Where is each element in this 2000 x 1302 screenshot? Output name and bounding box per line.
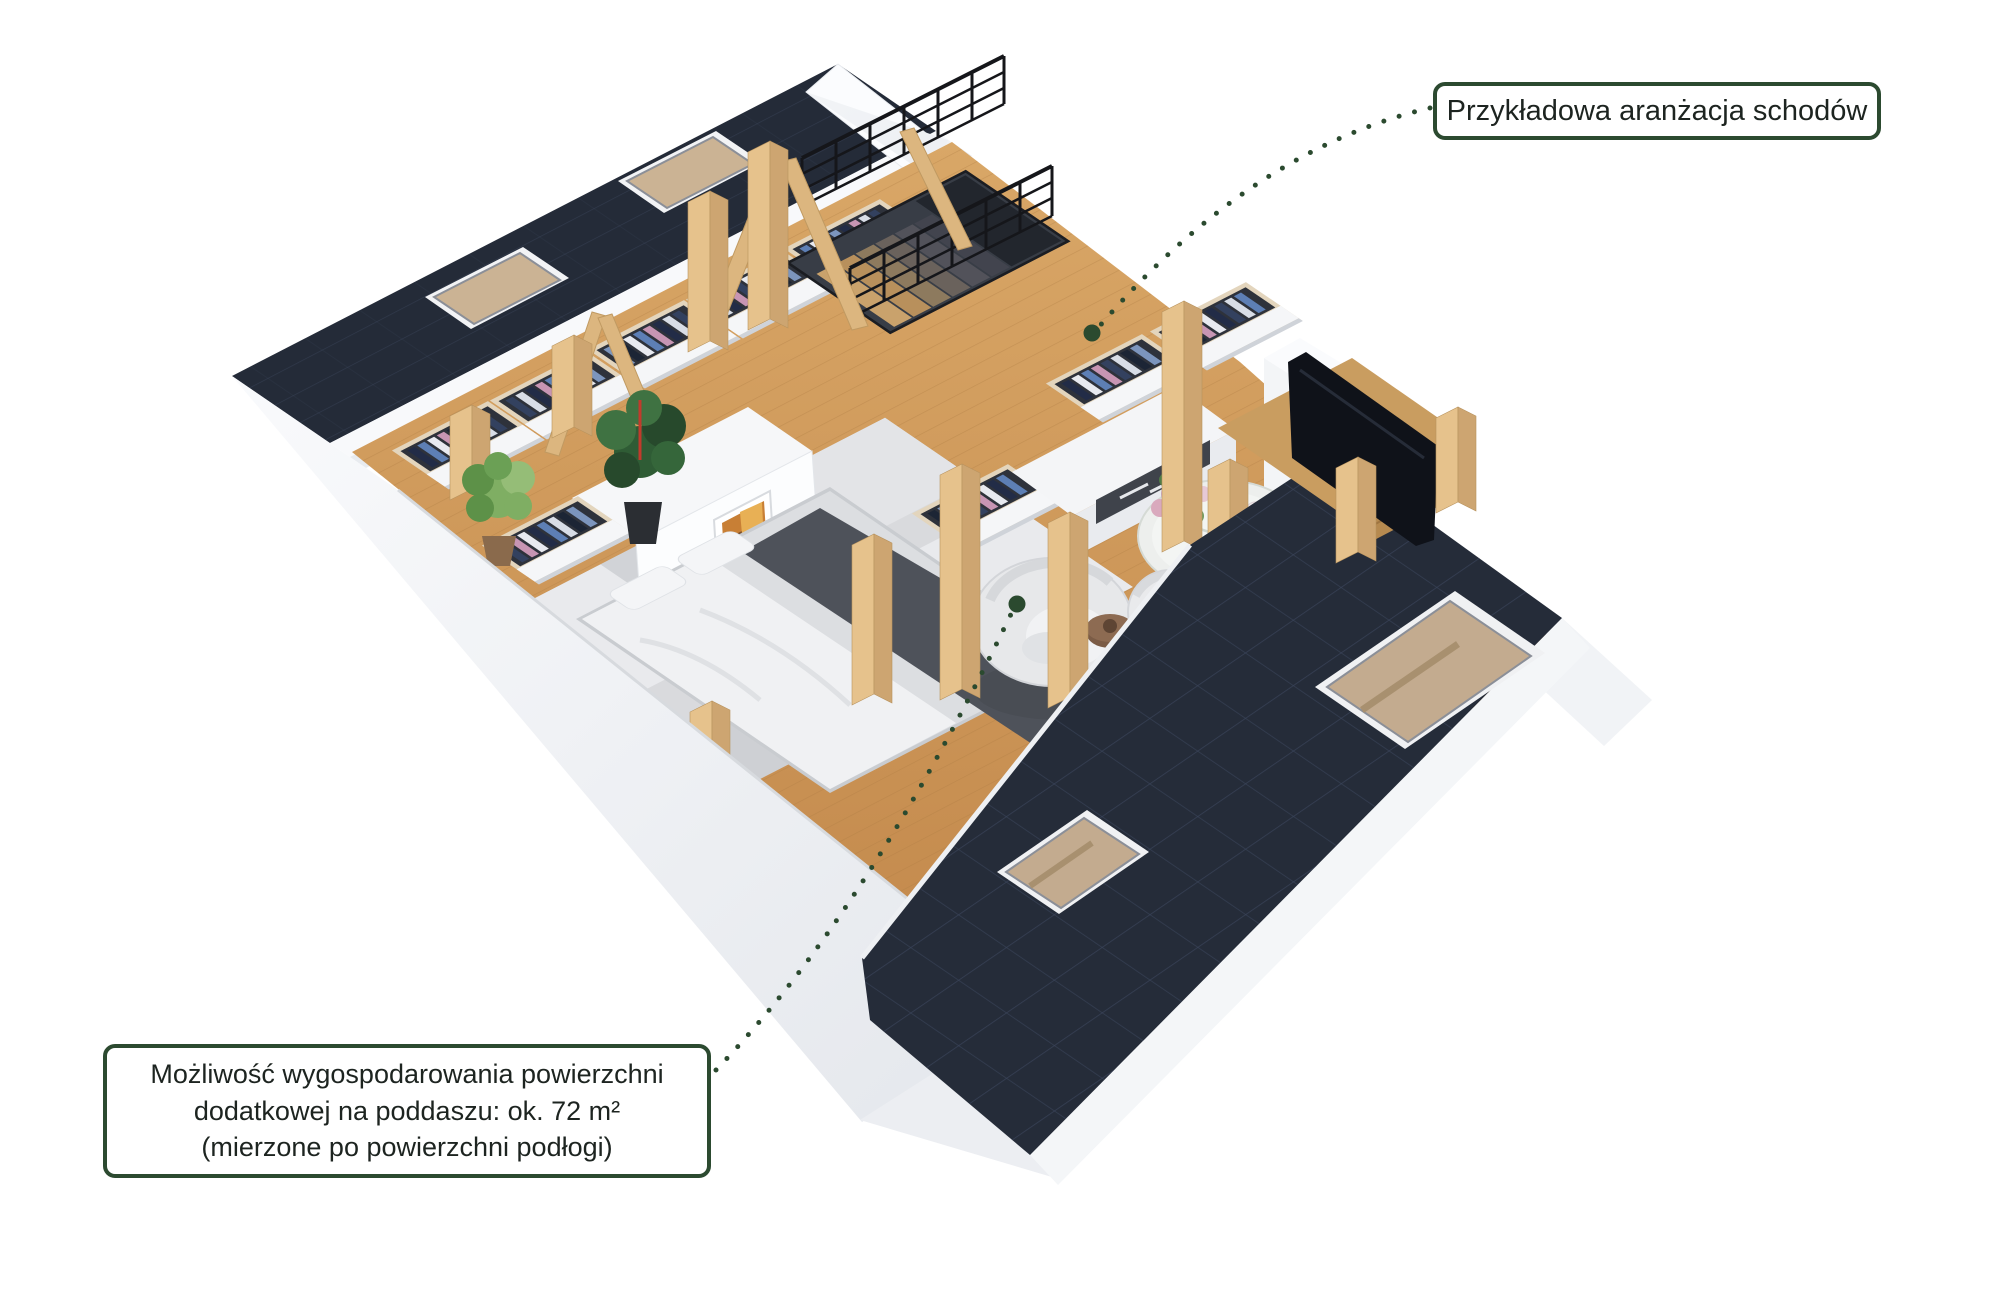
callout-attic-line1: Możliwość wygospodarowania powierzchni bbox=[107, 1056, 707, 1092]
leader-endpoint-dot-icon bbox=[1084, 325, 1101, 342]
leader-endpoint-dot-icon bbox=[1009, 596, 1026, 613]
callout-attic-line3: (mierzone po powierzchni podłogi) bbox=[107, 1129, 707, 1165]
callout-stairs-label: Przykładowa aranżacja schodów bbox=[1433, 82, 1881, 140]
floorplan-page: Przykładowa aranżacja schodów Możliwość … bbox=[0, 0, 2000, 1302]
callout-stairs-text: Przykładowa aranżacja schodów bbox=[1437, 95, 1877, 128]
callout-attic-label: Możliwość wygospodarowania powierzchni d… bbox=[103, 1044, 711, 1178]
callout-attic-line2: dodatkowej na poddaszu: ok. 72 m² bbox=[107, 1093, 707, 1129]
